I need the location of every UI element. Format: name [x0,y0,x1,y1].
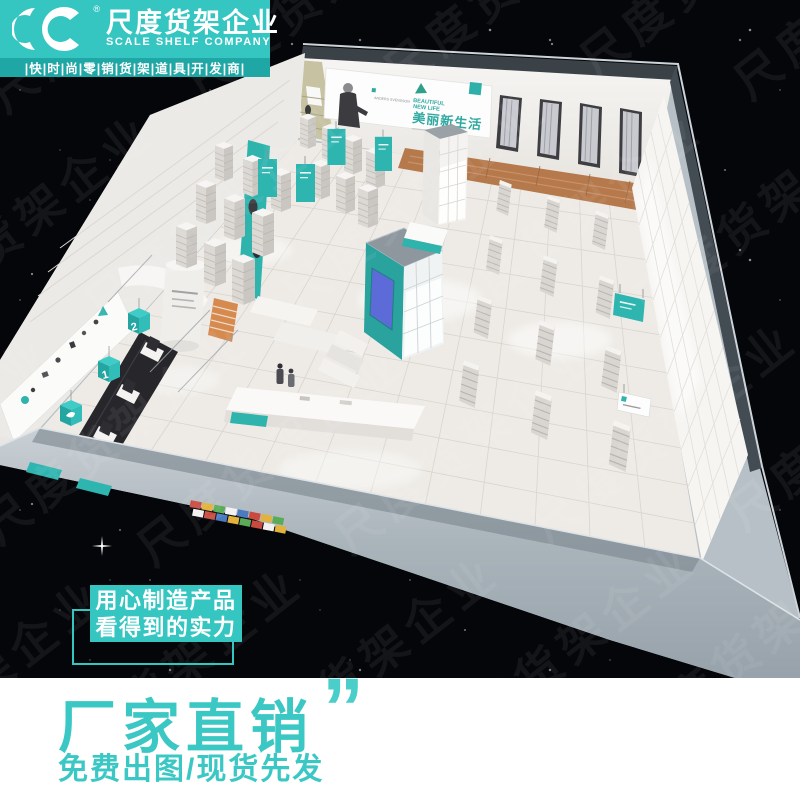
registered-trademark: ® [93,4,100,14]
footer-subline: 免费出图/现货先发 [58,744,324,788]
brand-logo-mark: ® [12,6,98,52]
brand-logo-row: ® 尺度货架企业 SCALE SHELF COMPANY [0,0,270,58]
badge-line1: 用心制造产品 [95,587,236,614]
shelf-tower [336,172,355,214]
brand-tagline-strip: |快|时|尚|零|销|货|架|道|具|开|发|商| [0,58,270,77]
fitting-mirror [537,99,562,160]
footer-strip: 厂家直销 ” 免费出图/现货先发 [0,678,800,800]
poster-teal-dot [21,396,29,404]
shelf-tower [215,142,233,182]
fitting-mirror [619,108,642,177]
shelf-tower [232,254,255,305]
banner-caption-dot [372,88,376,92]
quote-marks: ” [322,660,366,757]
fitting-mirror [578,103,602,168]
brand-header: ® 尺度货架企业 SCALE SHELF COMPANY |快|时|尚|零|销|… [0,0,270,77]
cc-logo-icon [12,6,98,52]
quality-badge: 用心制造产品 看得到的实力 [72,585,248,669]
badge-solid-box: 用心制造产品 看得到的实力 [90,585,242,642]
shelf-tower [344,135,362,175]
banner-teal-square [469,82,482,95]
shelf-tower [224,194,245,240]
company-name-en: SCALE SHELF COMPANY [106,37,280,49]
store-3d-render: ANDERS SVENSSON BEAUTIFUL NEW LIFE 美丽新生活 [0,0,800,680]
poster-canvas: ANDERS SVENSSON BEAUTIFUL NEW LIFE 美丽新生活 [0,0,800,800]
fitting-mirror [496,95,522,152]
shelf-tower [196,180,216,224]
shelf-tower [300,114,316,149]
company-name-zh: 尺度货架企业 [106,9,280,37]
shelf-tower [358,184,378,228]
badge-line2: 看得到的实力 [95,614,236,641]
brand-names: 尺度货架企业 SCALE SHELF COMPANY [106,9,280,49]
store-scene: ANDERS SVENSSON BEAUTIFUL NEW LIFE 美丽新生活 [0,44,800,678]
shelf-tower [176,222,197,268]
shelf-tower [204,238,226,286]
glass-display-tower [422,124,468,225]
shelf-tower [252,208,274,256]
